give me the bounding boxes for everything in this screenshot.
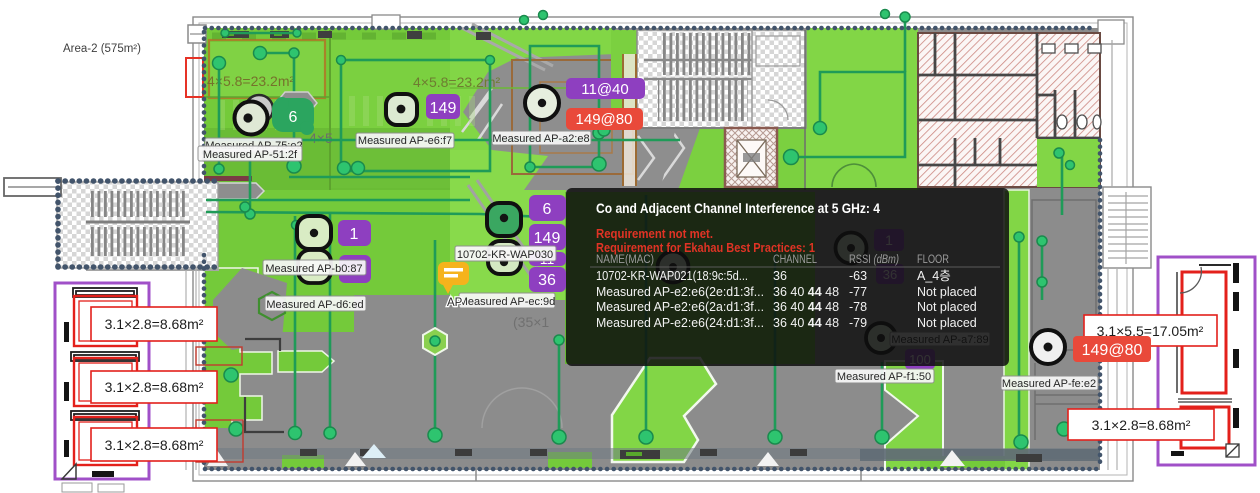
svg-text:Not placed: Not placed	[917, 300, 977, 314]
svg-text:6: 6	[543, 201, 552, 218]
svg-text:CHANNEL: CHANNEL	[773, 254, 817, 266]
svg-text:(35×1: (35×1	[513, 314, 549, 330]
svg-text:Measured AP-b0:87: Measured AP-b0:87	[265, 263, 362, 275]
svg-text:Measured AP-e2:e6(2a:d1:3f...: Measured AP-e2:e6(2a:d1:3f...	[596, 300, 764, 314]
svg-text:10702-KR-WAP030: 10702-KR-WAP030	[457, 249, 553, 261]
svg-text:FLOOR: FLOOR	[917, 254, 949, 266]
svg-text:Measured AP-51:2f: Measured AP-51:2f	[203, 149, 298, 161]
svg-text:Not placed: Not placed	[917, 285, 977, 299]
svg-text:36 40 44 48: 36 40 44 48	[773, 285, 839, 299]
svg-text:Co and Adjacent Channel Interf: Co and Adjacent Channel Interference at …	[596, 200, 880, 216]
svg-text:Not placed: Not placed	[917, 316, 977, 330]
svg-text:Measured AP-fe:e2: Measured AP-fe:e2	[1002, 378, 1096, 390]
svg-text:Requirement for Ekahau Best Pr: Requirement for Ekahau Best Practices: 1	[596, 241, 815, 255]
svg-text:1: 1	[350, 226, 359, 243]
svg-text:3.1×2.8=8.68m²: 3.1×2.8=8.68m²	[105, 437, 204, 453]
svg-text:Measured AP-f1:50: Measured AP-f1:50	[837, 371, 931, 383]
svg-text:Measured AP-e6:f7: Measured AP-e6:f7	[358, 135, 452, 147]
svg-text:36 40 44 48: 36 40 44 48	[773, 300, 839, 314]
svg-text:4×5.8=23.2m²: 4×5.8=23.2m²	[413, 74, 501, 90]
svg-text:-78: -78	[849, 300, 867, 314]
svg-text:-63: -63	[849, 269, 867, 283]
svg-text:Measured AP-e2:e6(2e:d1:3f...: Measured AP-e2:e6(2e:d1:3f...	[596, 285, 764, 299]
svg-text:Area-2 (575m²): Area-2 (575m²)	[63, 43, 141, 55]
svg-text:36 40 44 48: 36 40 44 48	[773, 316, 839, 330]
svg-text:AP: AP	[447, 297, 463, 309]
svg-text:3.1×2.8=8.68m²: 3.1×2.8=8.68m²	[105, 379, 204, 395]
svg-text:Requirement not met.: Requirement not met.	[596, 227, 713, 241]
svg-text:Measured AP-d6:ed: Measured AP-d6:ed	[266, 299, 363, 311]
svg-text:A_4층: A_4층	[917, 269, 951, 283]
svg-text:Measured AP-a2:e8: Measured AP-a2:e8	[492, 133, 589, 145]
svg-text:149: 149	[430, 100, 457, 117]
svg-text:-79: -79	[849, 316, 867, 330]
svg-text:11@40: 11@40	[581, 81, 628, 98]
svg-text:Measured AP-ec:9d: Measured AP-ec:9d	[459, 296, 556, 308]
svg-text:149@80: 149@80	[1082, 342, 1143, 359]
svg-text:149: 149	[534, 230, 561, 247]
svg-text:NAME(MAC): NAME(MAC)	[596, 254, 654, 266]
svg-text:6: 6	[289, 109, 298, 126]
svg-text:10702-KR-WAP021(18:9c:5d...: 10702-KR-WAP021(18:9c:5d...	[596, 269, 748, 283]
svg-text:Measured AP-e2:e6(24:d1:3f...: Measured AP-e2:e6(24:d1:3f...	[596, 316, 764, 330]
svg-text:149@80: 149@80	[576, 111, 633, 128]
svg-text:3.1×2.8=8.68m²: 3.1×2.8=8.68m²	[105, 316, 204, 332]
svg-text:-77: -77	[849, 285, 867, 299]
svg-text:RSSI (dBm): RSSI (dBm)	[849, 254, 899, 266]
svg-text:4×5: 4×5	[309, 130, 333, 146]
svg-text:36: 36	[773, 269, 787, 283]
svg-text:36: 36	[538, 272, 556, 289]
svg-text:3.1×2.8=8.68m²: 3.1×2.8=8.68m²	[1092, 417, 1191, 433]
